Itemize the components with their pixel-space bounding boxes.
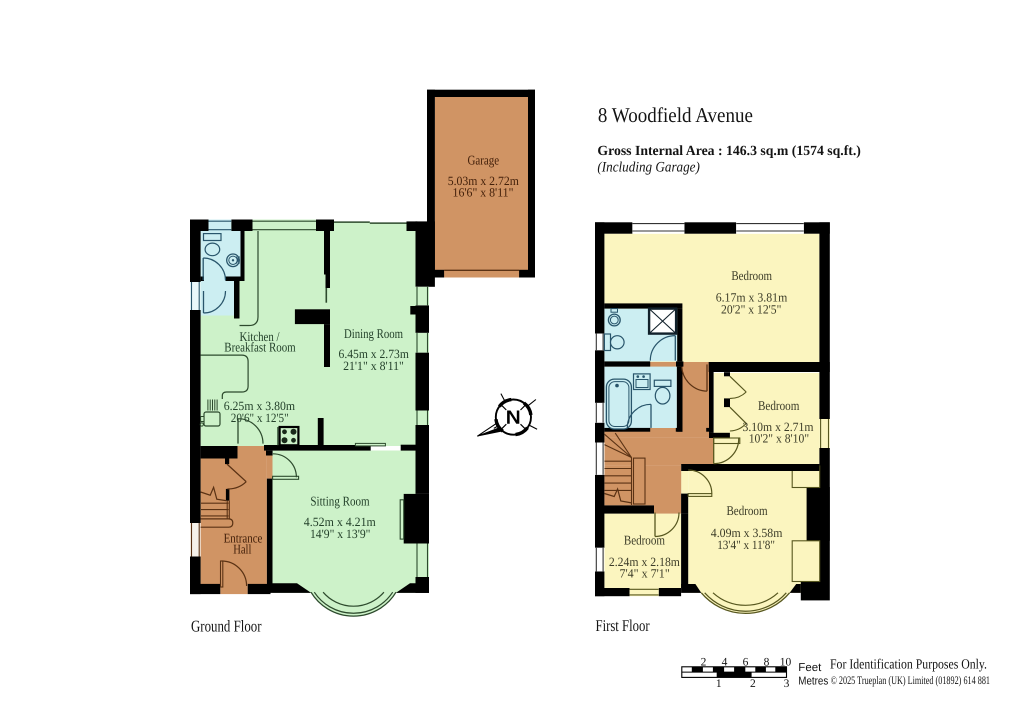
svg-text:20'6" x 12'5": 20'6" x 12'5" [231,411,289,425]
svg-text:Bedroom: Bedroom [758,398,800,413]
svg-text:4: 4 [722,656,728,668]
svg-text:Feet: Feet [798,662,822,674]
svg-text:Metres: Metres [798,675,828,687]
svg-text:3: 3 [784,678,790,690]
svg-text:Garage: Garage [468,153,500,168]
svg-text:1: 1 [716,678,722,690]
svg-text:13'4" x 11'8": 13'4" x 11'8" [717,538,775,552]
svg-text:2: 2 [750,678,756,690]
svg-text:Bedroom: Bedroom [624,533,666,548]
svg-text:Hall: Hall [233,542,251,557]
svg-text:7'4" x 7'1": 7'4" x 7'1" [619,566,669,580]
svg-text:2: 2 [701,656,707,668]
svg-text:10'2" x 8'10": 10'2" x 8'10" [749,432,809,446]
svg-text:Breakfast Room: Breakfast Room [224,339,296,354]
svg-text:20'2" x 12'5": 20'2" x 12'5" [721,302,781,316]
svg-text:16'6" x 8'11": 16'6" x 8'11" [453,185,514,199]
svg-text:For Identification Purposes: For Identification Purposes Only. [830,657,987,672]
svg-text:First Floor: First Floor [596,616,650,635]
svg-text:(Including Garage): (Including Garage) [597,160,700,176]
svg-text:Gross Internal Area : 146.3: Gross Internal Area : 146.3 sq.m (1574 s… [597,144,861,159]
svg-text:Ground Floor: Ground Floor [191,616,262,635]
svg-text:10: 10 [780,656,792,668]
svg-text:14'9" x 13'9": 14'9" x 13'9" [310,527,371,541]
svg-text:8 Woodfield Avenue: 8 Woodfield Avenue [598,103,753,127]
svg-text:© 2025 Trueplan (UK) Limited: © 2025 Trueplan (UK) Limited (01892) 614… [831,675,990,687]
svg-text:Bedroom: Bedroom [726,503,768,518]
svg-text:Dining Room: Dining Room [344,326,403,341]
svg-text:8: 8 [764,656,770,668]
svg-text:6: 6 [743,656,749,668]
svg-text:21'1" x 8'11": 21'1" x 8'11" [343,359,404,373]
svg-text:Bedroom: Bedroom [731,268,772,283]
svg-text:Sitting Room: Sitting Room [310,493,370,508]
